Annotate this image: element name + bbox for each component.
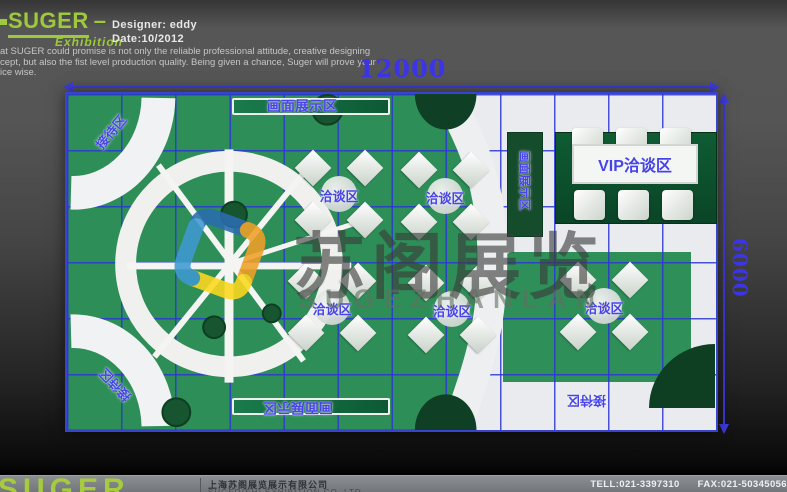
intro-line-3: ice wise. (0, 68, 385, 79)
height-dimension-label: 6000 (728, 238, 752, 298)
arrow-down-icon (719, 424, 729, 434)
arrow-up-icon (719, 93, 729, 103)
footer-contact: TELL:021-3397310 FAX:021-50345056 (590, 479, 787, 490)
width-dimension-line (65, 86, 718, 88)
footer-tel: TELL:021-3397310 (590, 479, 679, 490)
chair-icon (460, 317, 497, 354)
footer-company-english: SUGER(SH) EXHIBITION CO.,LTD (208, 488, 362, 492)
footer-bar: SUGER 上海苏阁展览展示有限公司 SUGER(SH) EXHIBITION … (0, 475, 787, 492)
negotiation-label: 洽谈区 (304, 186, 374, 205)
chair-icon (612, 314, 649, 351)
design-date: Date:10/2012 (112, 33, 184, 45)
media-wall-label: 画面展示区 (517, 150, 534, 210)
designer-credit: Designer: eddy (112, 19, 197, 31)
design-sheet: SUGER– Exhibition Designer: eddy Date:10… (0, 0, 787, 492)
brand-logo: SUGER– (8, 8, 107, 38)
footer-fax: FAX:021-50345056 (698, 479, 787, 490)
vip-chair (662, 190, 693, 220)
intro-line-1: at SUGER could promise is not only the r… (0, 47, 385, 58)
vip-chair (618, 190, 649, 220)
footer-divider (200, 478, 201, 492)
chair-icon (340, 315, 377, 352)
brand-logo-text: SUGER (8, 8, 89, 38)
display-area-label-bottom: 画面展示区 (263, 398, 333, 418)
width-dimension-label: 12000 (358, 54, 447, 83)
arrow-left-icon (63, 82, 73, 92)
vip-label-plate: VIP洽谈区 (572, 144, 698, 184)
vip-area-label: VIP洽谈区 (598, 152, 672, 176)
intro-paragraph: at SUGER could promise is not only the r… (0, 47, 385, 79)
negotiation-label: 洽谈区 (410, 188, 480, 207)
arrow-right-icon (710, 82, 720, 92)
watermark-english-text: SUGEZHANLAN (298, 284, 604, 315)
brand-logo-dash: – (94, 8, 107, 33)
reception-label-bottom-right: 接待区 (567, 392, 606, 411)
footer-logo: SUGER (0, 475, 130, 492)
brand-dash-icon (0, 19, 7, 25)
intro-line-2: cept, but also the fist level production… (0, 58, 385, 69)
display-area-label-top: 画面展示区 (267, 96, 337, 116)
height-dimension-line (723, 95, 725, 432)
